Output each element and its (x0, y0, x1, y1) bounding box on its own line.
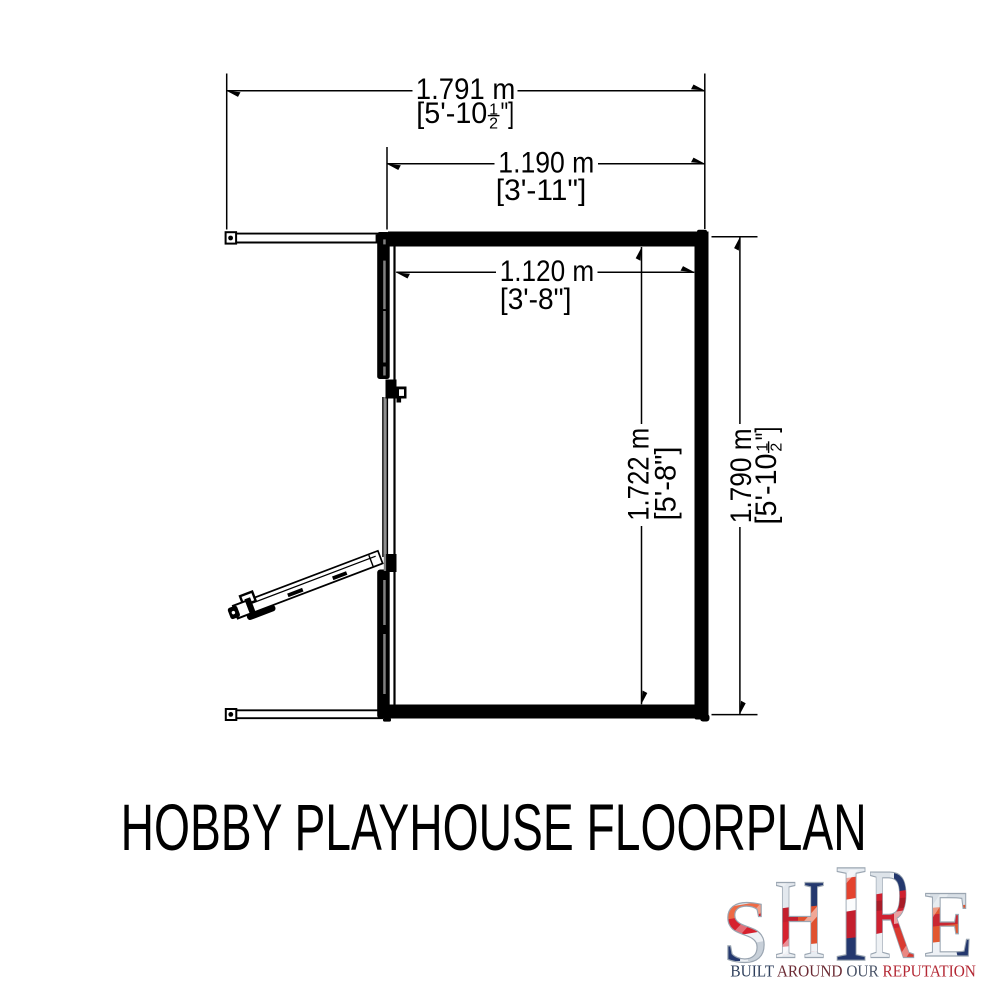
svg-text:HOBBY PLAYHOUSE FLOORPLAN: HOBBY PLAYHOUSE FLOORPLAN (121, 790, 867, 864)
svg-text:[5'-8"]: [5'-8"] (650, 447, 683, 521)
svg-text:[3'-11"]: [3'-11"] (496, 174, 587, 207)
svg-text:[5'-10: [5'-10 (416, 97, 487, 130)
svg-text:"]: "] (750, 427, 783, 441)
svg-text:BUILT AROUND OUR REPUTATION: BUILT AROUND OUR REPUTATION (730, 961, 976, 980)
svg-text:"]: "] (501, 97, 515, 130)
svg-text:[5'-10: [5'-10 (750, 454, 783, 525)
svg-text:[3'-8"]: [3'-8"] (500, 283, 572, 316)
svg-text:2: 2 (489, 116, 498, 133)
svg-text:2: 2 (769, 443, 786, 452)
